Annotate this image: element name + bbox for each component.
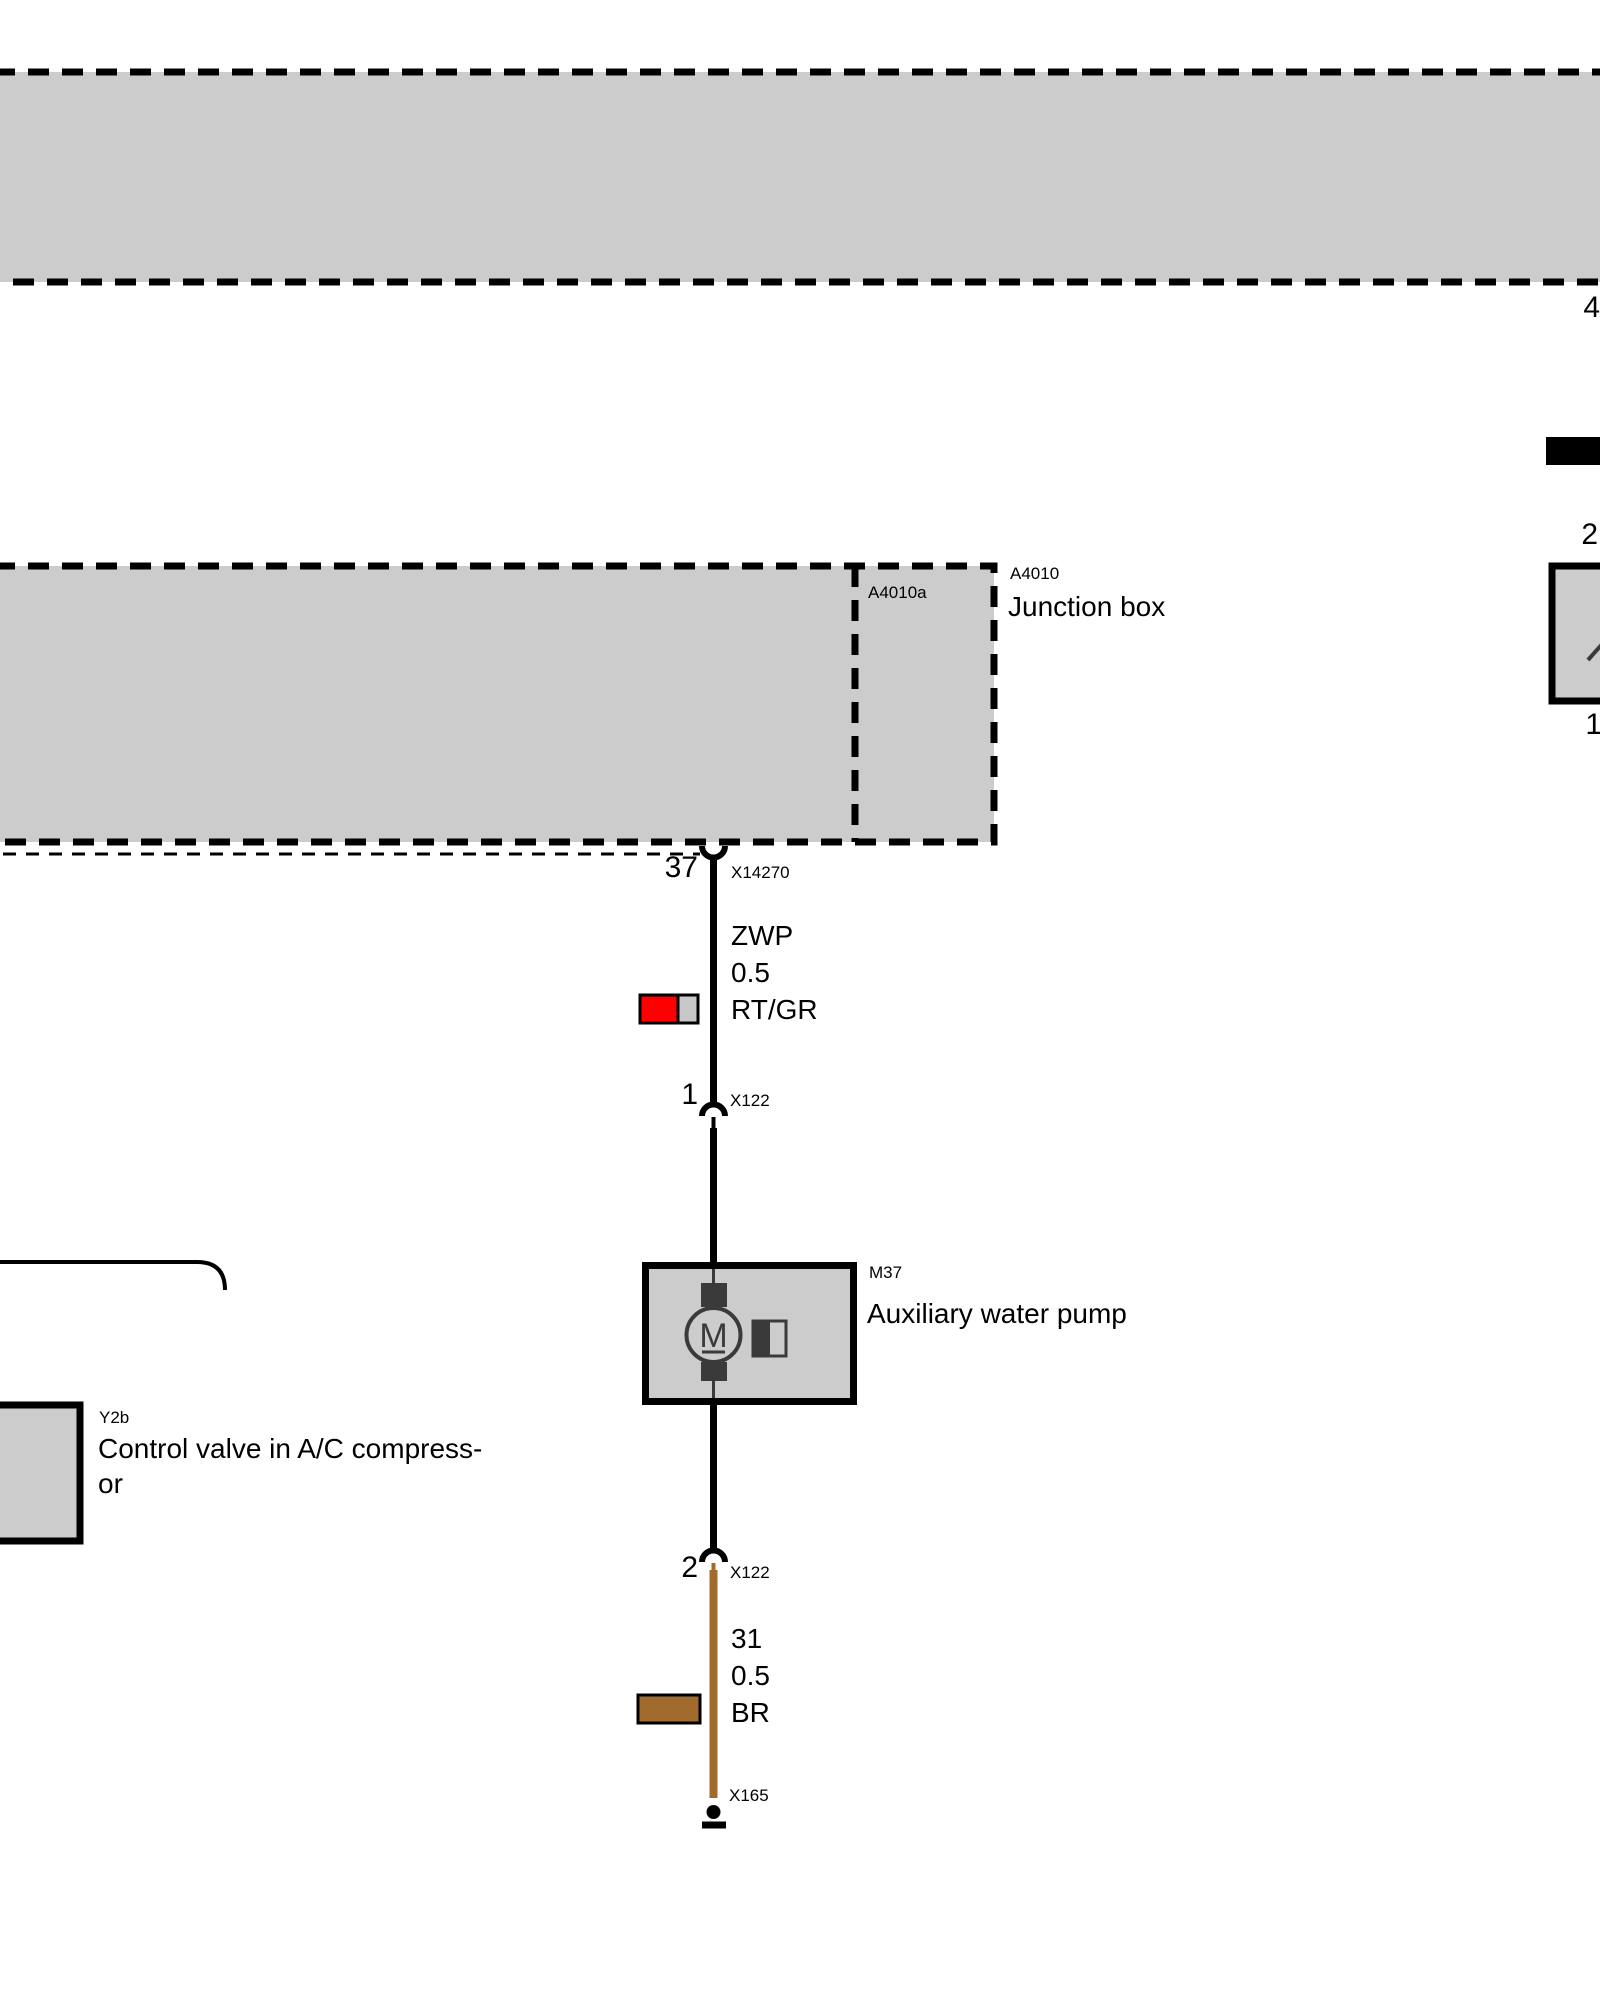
connector-x122-pin2-code: X122 — [730, 1563, 770, 1583]
pump-code: M37 — [869, 1263, 902, 1283]
wire-color-indicator-red — [640, 995, 678, 1023]
pump-component-box — [646, 1266, 854, 1402]
right-component-box — [1552, 566, 1600, 701]
motor-letter: M — [699, 1317, 727, 1355]
wire-color-indicator-brown — [638, 1695, 700, 1723]
wire-color-indicator-gray — [678, 995, 698, 1023]
junction-box-name: Junction box — [1008, 589, 1165, 624]
pump-name: Auxiliary water pump — [867, 1296, 1127, 1331]
right-component-pin-bottom: 1 — [1562, 708, 1600, 742]
power-wire-circuit: ZWP — [731, 917, 818, 954]
connector-x14270-code: X14270 — [731, 863, 790, 883]
junction-box-outline — [0, 566, 994, 842]
junction-box-code: A4010 — [1010, 564, 1059, 584]
connector-x14270-pin-number: 37 — [658, 851, 698, 885]
ground-wire-label: 31 0.5 BR — [731, 1620, 770, 1731]
top-module-pin-number: 4 — [1560, 291, 1600, 325]
right-terminal-bar — [1546, 437, 1600, 465]
control-valve-code: Y2b — [99, 1408, 129, 1428]
ground-eyelet-icon — [707, 1805, 721, 1819]
connector-x122-pin1-socket-icon — [702, 1105, 725, 1117]
motor-brush-top — [701, 1283, 727, 1307]
connector-x122-pin2-number: 2 — [658, 1551, 698, 1585]
power-wire-label: ZWP 0.5 RT/GR — [731, 917, 818, 1028]
control-valve-name-line2: or — [98, 1466, 123, 1501]
ground-wire-circuit: 31 — [731, 1620, 770, 1657]
right-component-pin-top: 2 — [1558, 518, 1598, 552]
junction-box-submodule-code: A4010a — [868, 583, 927, 603]
ground-wire-color-code: BR — [731, 1694, 770, 1731]
power-wire-color-code: RT/GR — [731, 991, 818, 1028]
control-valve-box — [0, 1405, 80, 1541]
wiring-diagram-page: M 4 2 1 A4010a A4010 Junction box 37 X14… — [0, 0, 1600, 2000]
ground-point-code: X165 — [729, 1786, 769, 1806]
connector-x122-pin1-number: 1 — [658, 1078, 698, 1112]
ground-wire-cross-section: 0.5 — [731, 1657, 770, 1694]
power-wire-cross-section: 0.5 — [731, 954, 818, 991]
connector-x14270-socket-icon — [702, 846, 725, 858]
pump-symbol-filled-half — [753, 1321, 770, 1356]
top-module-box — [0, 72, 1600, 282]
left-rounded-corner-line — [0, 1262, 225, 1290]
connector-x122-pin1-code: X122 — [730, 1091, 770, 1111]
control-valve-name-line1: Control valve in A/C compress- — [98, 1431, 482, 1466]
motor-brush-bottom — [701, 1362, 727, 1381]
connector-x122-pin2-socket-icon — [702, 1551, 725, 1562]
